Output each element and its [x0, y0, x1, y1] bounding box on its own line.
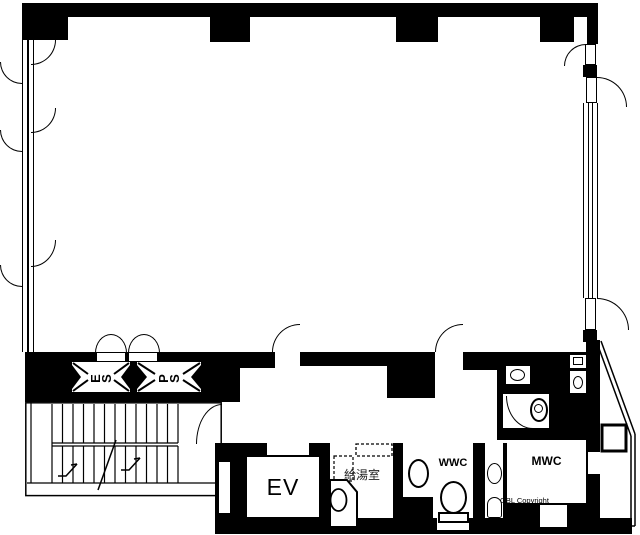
diagonal-wall [594, 336, 640, 534]
mwc-floor-gap [540, 505, 567, 527]
ne-door-leaf-in [585, 44, 596, 65]
copyright-text: OBL Copyright [500, 497, 549, 505]
window-swing-arc [0, 265, 22, 287]
core-band-east [463, 352, 497, 370]
core-band-mid [300, 352, 435, 366]
se-door-arc-out [597, 298, 629, 330]
shaft-door-sill [128, 352, 158, 362]
womens-wc-label: WWC [433, 458, 473, 469]
overhead-cabinet-dashed [356, 444, 392, 456]
window-swing-arc [0, 62, 22, 84]
right-window-wall-inner [592, 103, 598, 298]
urinal-oval [510, 369, 525, 381]
right-window-wall-outer [583, 103, 589, 298]
elevator-counterweight [218, 461, 231, 514]
sink-bowl [331, 489, 347, 511]
ne-door-leaf-out [586, 77, 597, 103]
elevator-car: EV [245, 455, 321, 519]
column-n2 [210, 3, 250, 42]
mwc-room [507, 440, 586, 503]
staircase [25, 402, 222, 497]
fixture-ne [573, 357, 583, 365]
mwc-basin [487, 463, 502, 484]
pipe-shaft-label: PS [137, 362, 201, 392]
mwc-stall-toilet-inner [534, 404, 543, 413]
column-nw [22, 3, 68, 40]
kitchenette-label: 給湯室 [344, 469, 380, 481]
elevator-label: EV [267, 476, 300, 499]
electrical-shaft-box: ES [72, 362, 130, 392]
bottom-wall [215, 518, 632, 534]
duct-box [602, 425, 626, 451]
se-door-leaf-out [585, 298, 596, 330]
core-band-west2 [240, 352, 275, 368]
right-wall-chunk-top [583, 65, 597, 77]
floor-plan: ES PS [0, 0, 640, 535]
ne-door-arc-out [597, 77, 627, 107]
fixture-e [573, 376, 583, 389]
top-wall [22, 3, 598, 17]
wwc-toilet-bowl [440, 481, 467, 514]
wwc-basin [408, 459, 429, 488]
wwc-toilet-tank [438, 512, 469, 523]
corner-ne-wall [587, 3, 598, 44]
core-column [387, 366, 435, 398]
window-swing-arc [0, 130, 22, 152]
column-n4 [540, 3, 574, 42]
mens-wc-label: MWC [507, 455, 586, 467]
stair-treads-upper [63, 404, 179, 443]
left-window-wall-inner [28, 40, 34, 352]
pipe-shaft-box: PS [137, 362, 201, 392]
kitchenette [325, 440, 395, 532]
column-n3 [396, 3, 438, 42]
wwc-vestibule-south-wall [403, 497, 434, 520]
stair-treads-lower [63, 446, 179, 483]
shaft-door-sill [96, 352, 126, 362]
office-area [40, 25, 570, 345]
stair-direction-arrows [58, 458, 140, 476]
electrical-shaft-label: ES [72, 362, 130, 392]
